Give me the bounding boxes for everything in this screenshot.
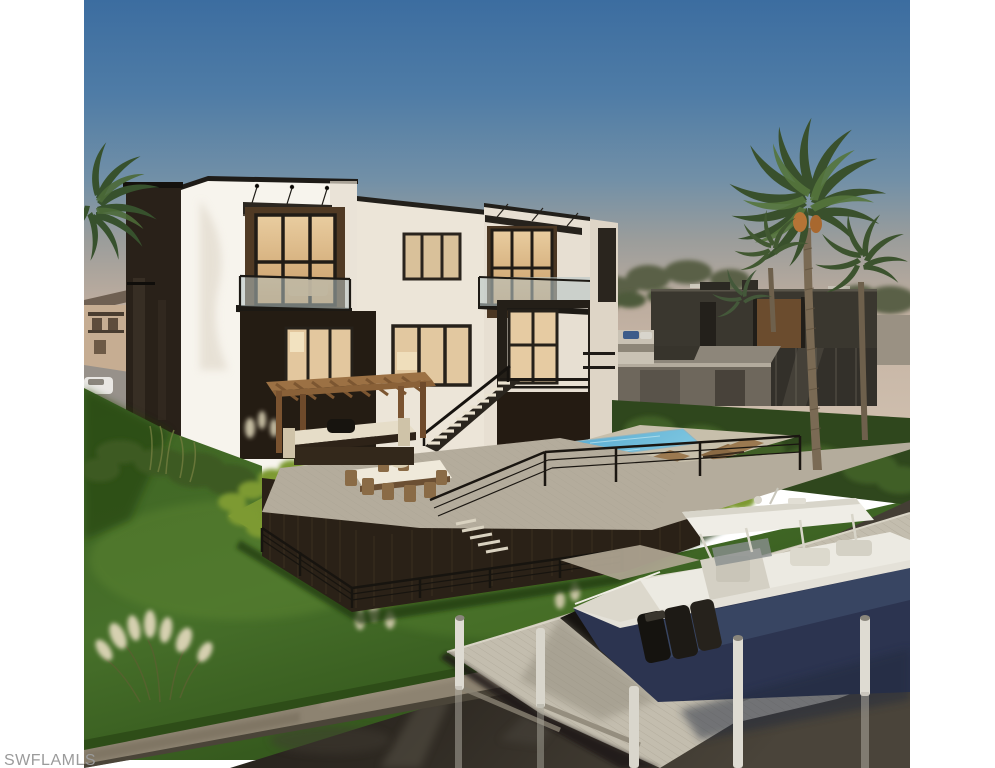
svg-text:SWFLAMLS: SWFLAMLS xyxy=(4,752,96,768)
